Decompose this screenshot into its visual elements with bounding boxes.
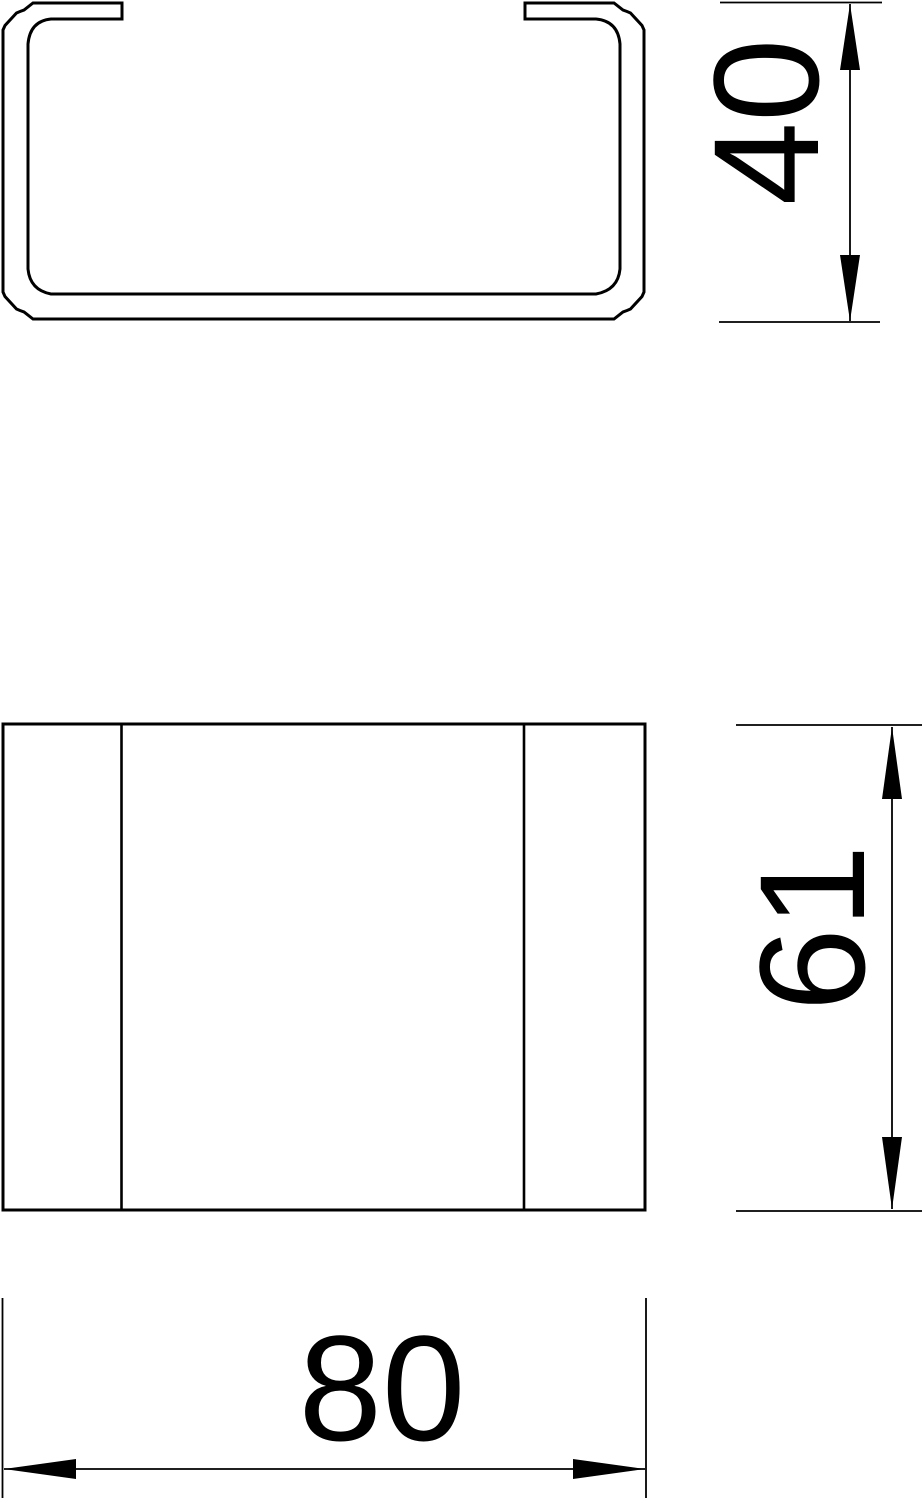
dimension-61-label: 61 xyxy=(728,845,896,1012)
technical-drawing-canvas: 40 61 80 xyxy=(0,0,922,1500)
dimension-61: 61 xyxy=(728,725,922,1211)
arrowhead-left-icon xyxy=(4,1459,76,1479)
dimension-80: 80 xyxy=(3,1298,647,1498)
arrowhead-right-icon xyxy=(573,1459,645,1479)
arrowhead-up-icon xyxy=(882,727,902,799)
dimension-80-label: 80 xyxy=(299,1304,466,1472)
channel-profile-outline xyxy=(3,3,644,319)
technical-drawing-page: 40 61 80 xyxy=(0,0,922,1500)
dimension-40: 40 xyxy=(682,3,882,323)
front-view-outline xyxy=(3,724,645,1210)
front-view xyxy=(3,724,645,1210)
dimension-40-label: 40 xyxy=(682,39,850,206)
arrowhead-down-icon xyxy=(882,1137,902,1209)
section-view xyxy=(3,3,644,319)
arrowhead-down-icon xyxy=(840,255,860,321)
